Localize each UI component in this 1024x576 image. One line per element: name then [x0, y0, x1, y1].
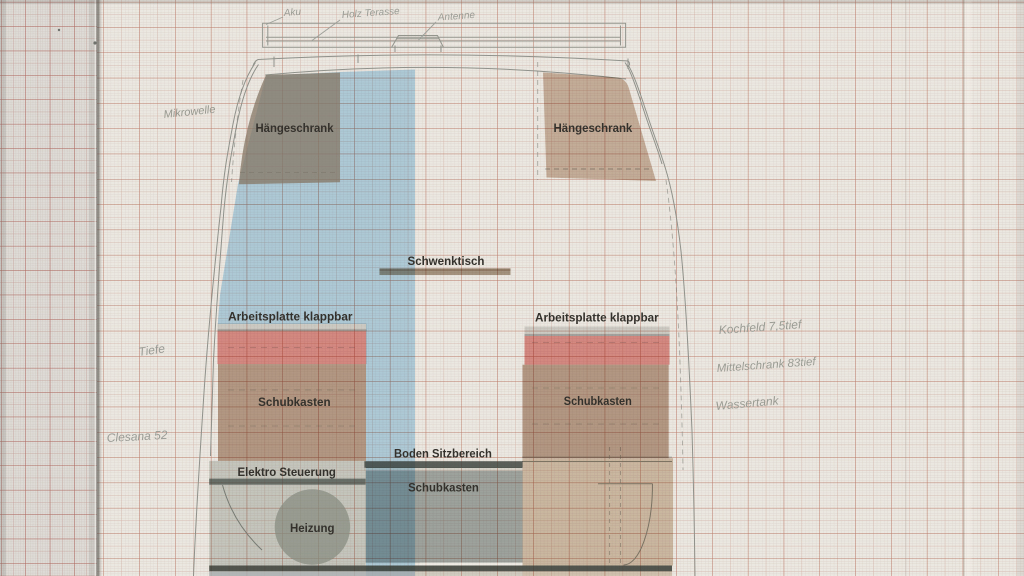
svg-text:Aku: Aku — [282, 7, 301, 19]
svg-text:Schubkasten: Schubkasten — [408, 481, 479, 495]
svg-text:Hängeschrank: Hängeschrank — [256, 121, 334, 135]
svg-text:Hängeschrank: Hängeschrank — [554, 121, 633, 135]
svg-text:Schubkasten: Schubkasten — [258, 395, 331, 409]
svg-text:Arbeitsplatte klappbar: Arbeitsplatte klappbar — [535, 310, 659, 324]
svg-text:Elektro Steuerung: Elektro Steuerung — [238, 465, 336, 479]
svg-text:Schubkasten: Schubkasten — [564, 394, 632, 408]
svg-text:Schwenktisch: Schwenktisch — [408, 254, 485, 268]
svg-text:Arbeitsplatte klappbar: Arbeitsplatte klappbar — [228, 309, 353, 323]
svg-text:Boden Sitzbereich: Boden Sitzbereich — [394, 447, 492, 461]
svg-text:Heizung: Heizung — [290, 521, 335, 535]
